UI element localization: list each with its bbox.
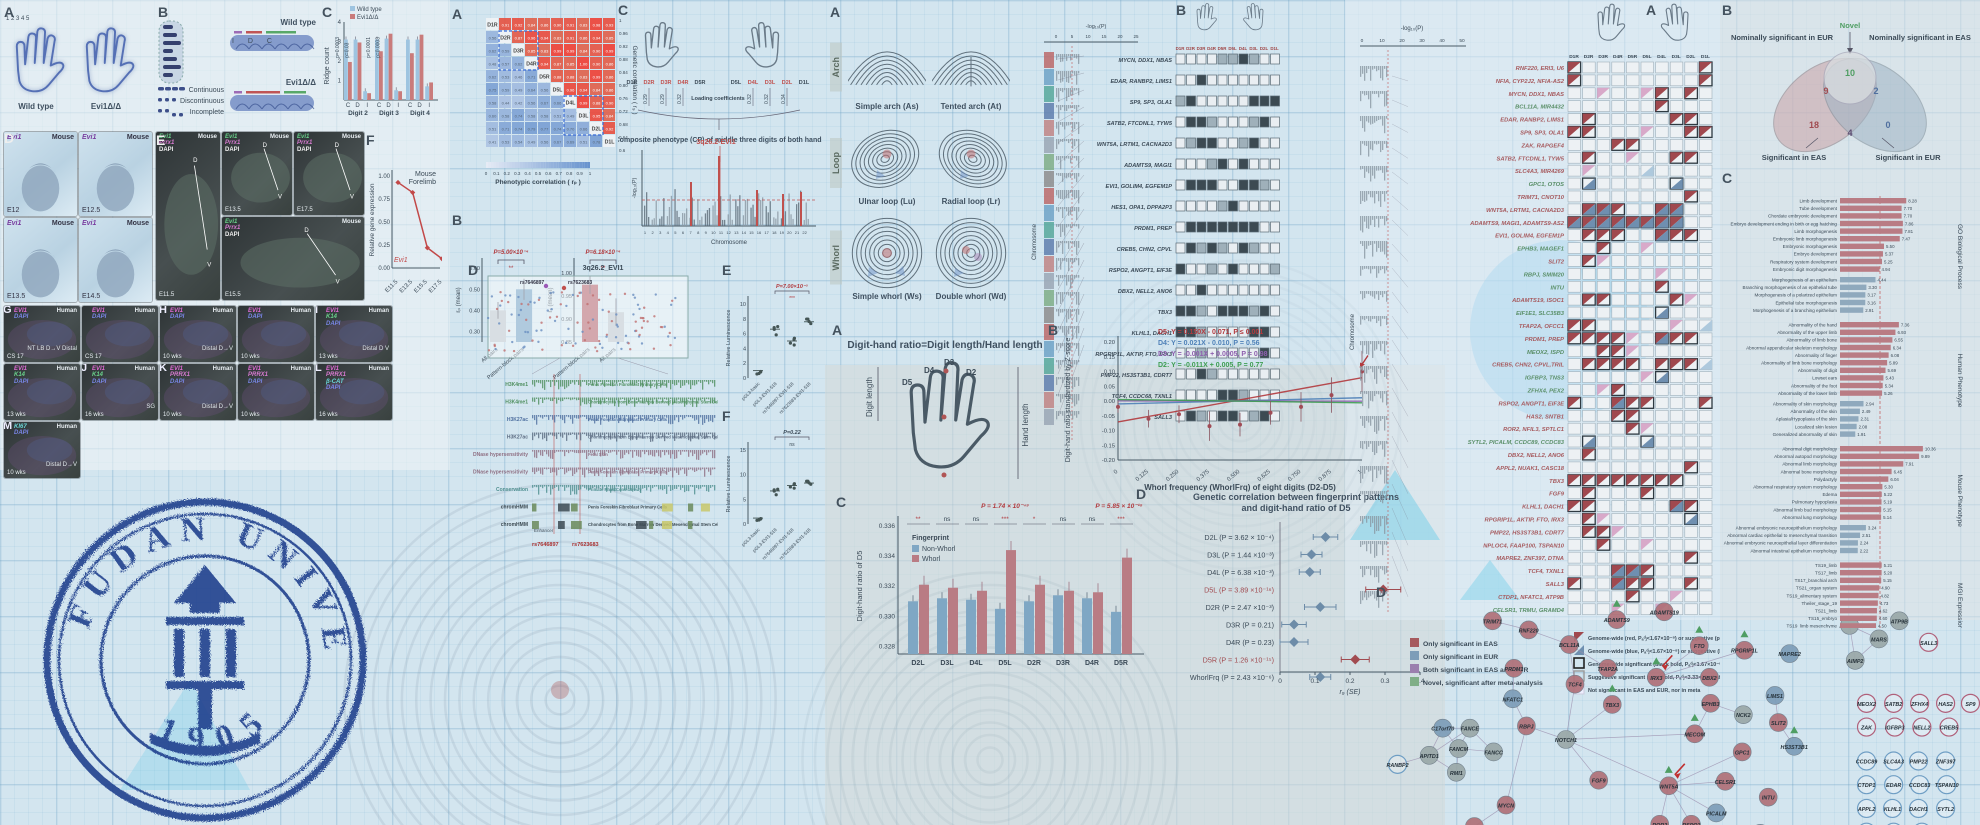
gene-row-label: SP9, SP3, OLA1 — [1130, 100, 1172, 106]
svg-text:0.79: 0.79 — [528, 127, 537, 132]
enrichment-term: TS19_limb mesenchyme — [1786, 624, 1837, 628]
svg-text:16: 16 — [757, 230, 762, 235]
network-gene: NELL2 — [1913, 726, 1930, 732]
network-gene: APITD1 — [1419, 754, 1439, 760]
panel-1d: D Evi1 Mouse E12 Evi1 Mouse E12.5 Evi1 M… — [4, 132, 152, 302]
enrichment-term: Epithelial tube morphogenesis — [1775, 300, 1837, 305]
svg-text:4.44: 4.44 — [1878, 278, 1887, 283]
forest-row-label: D5R (P = 1.26 ×10⁻¹⁵) — [1203, 655, 1274, 664]
enrichment-term: TS21_organ system — [1796, 586, 1837, 591]
svg-text:22: 22 — [802, 230, 807, 235]
svg-text:0.53: 0.53 — [502, 140, 511, 145]
svg-text:0.59: 0.59 — [502, 88, 511, 93]
svg-text:0.95: 0.95 — [593, 114, 602, 119]
svg-text:7.70: 7.70 — [1904, 206, 1913, 211]
enrichment-term: Polydactyly — [1814, 477, 1838, 482]
svg-text:5: 5 — [743, 497, 746, 503]
svg-text:0.67: 0.67 — [541, 101, 550, 106]
svg-text:0.2: 0.2 — [504, 171, 511, 176]
svg-text:Significant in EAS: Significant in EAS — [1762, 153, 1827, 162]
svg-text:3q26.2_EVI1: 3q26.2_EVI1 — [583, 265, 624, 272]
svg-text:D5R: D5R — [1114, 660, 1128, 667]
svg-text:D1L: D1L — [1270, 46, 1279, 51]
gene-row-label: FGF9 — [1549, 492, 1565, 498]
svg-text:D3R: D3R — [513, 49, 524, 55]
network-gene: RNF220 — [1519, 628, 1539, 634]
panel-ratio-c-bars: C P = 1.74 × 10⁻⁴⁹ P = 5.85 × 10⁻¹⁹ **ns… — [852, 498, 1148, 693]
svg-text:0.6: 0.6 — [545, 171, 552, 176]
svg-text:5.37: 5.37 — [1885, 252, 1894, 257]
network-gene: EPHB3 — [1702, 702, 1720, 708]
regression-equation: D3: Y = -0.001X + 0.0005, P = 0.98 — [1158, 351, 1268, 358]
gene-row-label: EVI1, GOLIM4, EGFEM1P — [1105, 184, 1172, 190]
enrichment-term: Abnormal limb bud morphology — [1773, 507, 1837, 512]
svg-text:5.50: 5.50 — [1886, 244, 1895, 249]
svg-text:rₚ (mean): rₚ (mean) — [456, 287, 462, 312]
enrichment-term: Localized skin lesion — [1795, 424, 1838, 429]
svg-text:0.90: 0.90 — [593, 62, 602, 67]
svg-text:D3L: D3L — [579, 114, 590, 120]
enrichment-term: TS17_limb — [1815, 571, 1837, 576]
svg-text:0.4: 0.4 — [524, 171, 531, 176]
svg-text:9: 9 — [705, 230, 708, 235]
svg-text:rs7646897: rs7646897 — [532, 542, 559, 548]
svg-text:D5R: D5R — [539, 75, 550, 81]
svg-text:5.20: 5.20 — [1884, 571, 1893, 576]
enrichment-term: Abnormal respiratory system morphology — [1753, 485, 1837, 490]
svg-text:5.25: 5.25 — [1884, 259, 1893, 264]
svg-text:D5R: D5R — [1218, 46, 1228, 51]
svg-text:2: 2 — [338, 59, 342, 65]
svg-text:0.91: 0.91 — [502, 23, 511, 28]
enrichment-term: Abnormal limb morphology — [1782, 462, 1837, 467]
svg-text:0.57: 0.57 — [502, 62, 511, 67]
enrichment-term: Abnormality of the skin — [1791, 409, 1838, 414]
svg-text:0.75: 0.75 — [489, 88, 498, 93]
svg-text:4: 4 — [743, 346, 746, 352]
svg-text:0: 0 — [1885, 120, 1890, 130]
gene-row-label: TRIM71, CNOT10 — [1517, 195, 1564, 201]
panel-2f-luciferase: F 051015 Relative Luminescence pGL3-basi… — [722, 408, 822, 558]
svg-text:I: I — [397, 103, 399, 109]
svg-text:C: C — [346, 103, 351, 109]
svg-text:Penis Foreskin Fibroblast Prim: Penis Foreskin Fibroblast Primary Cells — [588, 470, 668, 475]
digit-image: Wild type — [228, 18, 316, 53]
network-gene: NOTCH1 — [1555, 738, 1577, 744]
svg-text:V: V — [350, 194, 354, 200]
svg-text:2: 2 — [1873, 86, 1878, 96]
gene-row-label: PMP22, HS3ST3B1, CDRT7 — [1490, 530, 1565, 536]
network-gene: HS3ST3B1 — [1781, 745, 1808, 751]
svg-text:Mouse: Mouse — [415, 171, 436, 178]
enrichment-term: Tube development — [1799, 206, 1838, 211]
svg-text:0.7: 0.7 — [556, 171, 563, 176]
svg-text:13: 13 — [734, 230, 739, 235]
svg-text:D4R: D4R — [677, 80, 688, 86]
svg-text:I: I — [366, 103, 368, 109]
idc-markers: I D C — [232, 38, 278, 45]
svg-text:20: 20 — [1117, 34, 1123, 39]
svg-text:6: 6 — [682, 230, 685, 235]
limb-section-image: Evi1Prrx1DAPI MouseE11.5 DV — [156, 132, 220, 300]
svg-text:p<0.0001: p<0.0001 — [366, 37, 372, 58]
fingerprint-group: Loop Ulnar loop (Lu)Radial loop (Lr) — [830, 119, 1056, 206]
svg-text:Whorl: Whorl — [922, 556, 941, 563]
track-name: H3K4me1 — [505, 382, 528, 388]
network-gene: FTO — [1694, 644, 1705, 650]
enrichment-term: Abnormal cardiac epithelial to mesenchym… — [1727, 533, 1837, 538]
svg-text:5.34: 5.34 — [1885, 383, 1894, 388]
svg-text:0.91: 0.91 — [567, 23, 576, 28]
svg-text:D4R: D4R — [1207, 46, 1217, 51]
network-gene: TBX3 — [1605, 703, 1619, 709]
enrichment-term: Abnormality of the upper limb — [1777, 330, 1837, 335]
network-gene: ADAMTS9 — [1603, 618, 1630, 624]
limb-section-image: Evi1Prrx1DAPI MouseE15.5 DV — [222, 217, 364, 300]
svg-text:4.60: 4.60 — [1879, 616, 1888, 621]
svg-text:10: 10 — [740, 473, 746, 479]
enrichment-term: TS19_limb — [1815, 563, 1837, 568]
svg-text:4: 4 — [338, 20, 342, 26]
svg-text:D3L: D3L — [1249, 46, 1258, 51]
svg-text:D5L: D5L — [731, 80, 742, 86]
enrichment-term: Abnormality of limb bone — [1786, 338, 1837, 343]
svg-text:5.30: 5.30 — [1884, 485, 1893, 490]
track-name: DNase hypersensitivity — [473, 452, 528, 458]
network-gene: SLIT2 — [1771, 721, 1786, 727]
panel-1c-ridge-chart: C Wild type Evi1Δ/Δ 1234 Ridge count CDI… — [322, 4, 442, 128]
svg-text:0.83: 0.83 — [580, 75, 589, 80]
embryo-limb-image: Evi1 Mouse E12 — [4, 132, 77, 216]
svg-text:0.330: 0.330 — [879, 613, 896, 620]
svg-text:6.08: 6.08 — [1891, 353, 1900, 358]
svg-text:7.86: 7.86 — [1905, 221, 1914, 226]
svg-text:3.16: 3.16 — [1867, 300, 1876, 305]
track-name: chromHMM — [501, 505, 528, 511]
network-gene: BCL11A — [1559, 643, 1580, 649]
svg-text:5.15: 5.15 — [1883, 578, 1892, 583]
enrichment-term: Abnormal embryonic neuroepithelium morph… — [1736, 526, 1838, 531]
gene-row-label: APPL2, NUAK1, CASC18 — [1495, 466, 1565, 472]
svg-text:0.83: 0.83 — [541, 49, 550, 54]
enrichment-term: Branching morphogenesis of an epithelial… — [1743, 285, 1838, 290]
svg-text:rs7646897: rs7646897 — [520, 280, 544, 286]
svg-text:0.334: 0.334 — [879, 553, 896, 560]
svg-text:8.28: 8.28 — [1908, 199, 1917, 204]
svg-text:0.94: 0.94 — [541, 62, 550, 67]
svg-text:-0.10: -0.10 — [1102, 429, 1115, 435]
enrichment-term: Abnormality of finger — [1795, 353, 1838, 358]
svg-text:0.96: 0.96 — [528, 36, 537, 41]
network-gene: CCDC89 — [1856, 759, 1878, 765]
group-label: Loop — [830, 138, 842, 188]
gene-row-label: EVI1, GOLIM4, EGFEM1P — [1495, 234, 1564, 240]
svg-text:Chromosome: Chromosome — [1032, 223, 1038, 260]
svg-text:D: D — [386, 103, 391, 109]
svg-text:7.36: 7.36 — [1901, 323, 1910, 328]
gene-row-label: PRDM1, PREP — [1525, 337, 1564, 343]
svg-text:C: C — [377, 103, 382, 109]
enrichment-term: TS19_alimentary system — [1786, 593, 1837, 598]
svg-text:5.14: 5.14 — [1883, 515, 1892, 520]
enrichment-term: Edema — [1822, 492, 1837, 497]
svg-text:7.81: 7.81 — [1904, 229, 1913, 234]
panel-4d-network: D TRIM71RNF220BCL11AADAMTS9ADAMTS19FTORP… — [1380, 600, 1980, 825]
forest-row-label: D2R (P = 2.47 ×10⁻³) — [1206, 603, 1274, 612]
svg-text:50: 50 — [1459, 38, 1465, 44]
svg-text:0.86: 0.86 — [606, 88, 615, 93]
svg-text:0.99: 0.99 — [593, 75, 602, 80]
enrichment-term: Aplasia/Hypoplasia of the skin — [1776, 417, 1838, 422]
svg-text:V: V — [207, 262, 211, 268]
network-gene: TSPAN10 — [1935, 783, 1959, 789]
gene-row-label: EDAR, RANBP2, LIMS1 — [1500, 118, 1564, 124]
gene-row-label: ADAMTS9, MAGI1, ADAMTS9-AS2 — [1469, 221, 1565, 227]
svg-text:0.41: 0.41 — [489, 140, 498, 145]
network-gene: IGFBP3 — [1885, 726, 1904, 732]
svg-text:0.94: 0.94 — [593, 36, 602, 41]
svg-text:0.86: 0.86 — [606, 75, 615, 80]
enrichment-term: Limb morphogenesis — [1794, 229, 1837, 234]
svg-text:Penis Foreskin Fibroblast Prim: Penis Foreskin Fibroblast Primary Cells — [588, 417, 668, 422]
svg-text:4.50: 4.50 — [1878, 624, 1887, 628]
svg-text:Ridge count: Ridge count — [324, 47, 331, 84]
gene-row-label: KLHL1, DACH1 — [1522, 505, 1564, 511]
network-gene: NFATC1 — [1503, 697, 1524, 703]
svg-text:D3L: D3L — [765, 80, 776, 86]
svg-text:Novel: Novel — [1840, 21, 1860, 30]
svg-text:6.93: 6.93 — [1897, 330, 1906, 335]
svg-text:8: 8 — [743, 317, 746, 323]
svg-text:D2R: D2R — [643, 80, 654, 86]
enrichment-term: Lowset ears — [1812, 376, 1837, 381]
svg-text:0.05: 0.05 — [1104, 384, 1115, 390]
svg-text:0.99: 0.99 — [606, 49, 615, 54]
svg-text:rs7623683-EVI1-518: rs7623683-EVI1-518 — [778, 527, 812, 561]
svg-text:0: 0 — [485, 171, 488, 176]
gene-row-label: TFAP2A, OFCC1 — [1519, 324, 1564, 330]
svg-text:Digit-hand ratio of D5: Digit-hand ratio of D5 — [855, 551, 864, 622]
svg-text:0.29: 0.29 — [643, 94, 649, 104]
panel-5b-venn: B Novel Nominally significant in EUR Nom… — [1722, 2, 1978, 170]
gene-row-label: CREB5, CHN2, CPVL — [1117, 247, 1173, 253]
gene-row-label: IGFBP3, TNS3 — [1525, 376, 1565, 382]
svg-text:3.24: 3.24 — [1868, 526, 1877, 531]
svg-text:0.90: 0.90 — [554, 23, 563, 28]
svg-text:p=0.03: p=0.03 — [345, 42, 351, 58]
svg-text:2.51: 2.51 — [1862, 533, 1871, 538]
svg-text:6.45: 6.45 — [1894, 469, 1903, 474]
svg-text:14: 14 — [742, 230, 747, 235]
forest-row-label: D4L (P = 6.38 ×10⁻³) — [1207, 568, 1274, 577]
svg-text:Nominally significant in EAS: Nominally significant in EAS — [1869, 33, 1971, 42]
track-name: chromHMM — [501, 522, 528, 528]
svg-text:D1R: D1R — [487, 23, 498, 29]
svg-text:Significant in EUR: Significant in EUR — [1875, 153, 1941, 162]
track-name: H3K4me1 — [505, 400, 528, 406]
network-gene: HAS2 — [1938, 702, 1952, 708]
svg-text:D2L: D2L — [592, 127, 603, 133]
human-section-image: EVI1DAPI Human10 wks — [238, 306, 314, 362]
svg-text:0.85: 0.85 — [567, 62, 576, 67]
svg-text:C: C — [408, 103, 413, 109]
svg-text:0.94: 0.94 — [580, 88, 589, 93]
svg-text:18: 18 — [1809, 120, 1819, 130]
panel-1g-m-tiles: G EVI1DAPI HumanCS 17 NT LB D→V Distal E… — [4, 306, 442, 422]
svg-text:5.22: 5.22 — [1884, 492, 1893, 497]
svg-text:D1L: D1L — [799, 80, 810, 86]
svg-text:3.17: 3.17 — [1867, 293, 1876, 298]
svg-text:Digit 2: Digit 2 — [348, 110, 368, 117]
network-gene: RANBP2 — [1386, 763, 1408, 769]
svg-text:0.77: 0.77 — [541, 127, 550, 132]
svg-text:2: 2 — [651, 230, 654, 235]
svg-text:-0.05: -0.05 — [1102, 414, 1115, 420]
svg-text:6: 6 — [743, 332, 746, 338]
svg-text:0.88: 0.88 — [593, 101, 602, 106]
svg-text:D2R: D2R — [1186, 46, 1196, 51]
panel-ratio-a-hand: A Digit-hand ratio=Digit length/Hand len… — [832, 322, 1058, 494]
svg-text:P=7.00×10⁻⁵: P=7.00×10⁻⁵ — [776, 284, 809, 290]
svg-text:0.50: 0.50 — [378, 220, 390, 226]
gene-row-label: TCF4, TXNL1 — [1528, 569, 1564, 575]
svg-text:p=0.0003: p=0.0003 — [335, 37, 341, 58]
svg-text:-log₁₀(P): -log₁₀(P) — [1401, 26, 1424, 32]
regression-equation: D5: Y = 0.150X - 0.071, P ≤ 0.001 — [1158, 329, 1263, 336]
network-gene: FGF9 — [1592, 779, 1606, 785]
svg-text:D4L: D4L — [1239, 46, 1248, 51]
enrichment-term: Abnormal autopod morphology — [1774, 454, 1838, 459]
gene-row-label: ADAMTS19, ISOC1 — [1511, 298, 1564, 304]
svg-text:0.49: 0.49 — [515, 88, 524, 93]
enrichment-term: Theiler_stage_19 — [1802, 601, 1838, 606]
human-section-image: H EVI1DAPI Human10 wks Distal D→V — [160, 306, 236, 362]
svg-text:D5L: D5L — [1228, 46, 1237, 51]
panel-2c-manhattan: 3q26.2-EVI1 1234567891011121314151617181… — [630, 134, 822, 250]
network-gene: MEOX2 — [1857, 702, 1876, 708]
hand-caption: Evi1Δ/Δ — [74, 102, 138, 111]
enrichment-term: Generalized abnormality of skin — [1773, 432, 1838, 437]
svg-text:2.49: 2.49 — [1862, 409, 1871, 414]
svg-text:4.62: 4.62 — [1879, 609, 1888, 614]
svg-text:0.625: 0.625 — [1257, 469, 1272, 483]
svg-text:Digit length: Digit length — [865, 377, 874, 417]
enrichment-term: Abnormality of the hand — [1788, 323, 1837, 328]
panel-1f-expression-line: F MouseForelimb 0.000.250.500.751.00 Rel… — [366, 132, 442, 302]
gene-row-label: TBX3 — [1158, 310, 1173, 316]
network-gene: EDAR — [1886, 783, 1901, 789]
svg-text:-log₁₀(P): -log₁₀(P) — [1086, 24, 1107, 30]
network-gene: ZFHX4 — [1910, 702, 1928, 708]
svg-text:0.92: 0.92 — [606, 127, 615, 132]
svg-text:D1R: D1R — [1569, 54, 1579, 60]
svg-text:Digit 3: Digit 3 — [379, 110, 399, 117]
svg-text:Evi1Δ/Δ: Evi1Δ/Δ — [357, 15, 378, 21]
svg-text:Relative Luminescence: Relative Luminescence — [726, 310, 732, 367]
svg-text:Hand length: Hand length — [1021, 403, 1030, 446]
svg-text:D: D — [417, 103, 422, 109]
ridge-type-label: Incomplete — [190, 109, 224, 116]
gene-row-label: MAPRE2, ZNF397, DTNA — [1496, 556, 1564, 562]
svg-text:D3L: D3L — [940, 660, 954, 667]
enrichment-group-label: MGI Expression: Detected — [1956, 583, 1963, 628]
svg-text:***: *** — [1117, 516, 1125, 523]
svg-text:D4L: D4L — [566, 101, 577, 107]
fingerprint-type: Simple whorl (Ws) — [848, 214, 926, 301]
svg-text:7.47: 7.47 — [1902, 237, 1911, 242]
gene-row-label: EIF1E1, SLC35B3 — [1516, 311, 1565, 317]
svg-text:0.87: 0.87 — [515, 36, 524, 41]
svg-text:D2R: D2R — [1584, 54, 1594, 60]
gene-row-label: MYCN, DDX1, NBAS — [1119, 58, 1173, 64]
svg-text:21: 21 — [795, 230, 800, 235]
network-gene: RPGRIP1L — [1731, 649, 1758, 655]
svg-text:-0.15: -0.15 — [1102, 443, 1115, 449]
svg-text:5.43: 5.43 — [1885, 376, 1894, 381]
svg-text:10: 10 — [1379, 38, 1385, 44]
svg-text:0.74: 0.74 — [515, 114, 524, 119]
svg-text:Whorl frequency (WhorlFrq) of: Whorl frequency (WhorlFrq) of eight digi… — [1144, 483, 1336, 492]
svg-text:0.56: 0.56 — [528, 101, 537, 106]
gene-row-label: TBX3 — [1549, 479, 1565, 485]
gene-row-label: DBX2, NELL2, ANO6 — [1508, 453, 1565, 459]
svg-text:0.29: 0.29 — [660, 94, 666, 104]
svg-text:0.56: 0.56 — [541, 88, 550, 93]
svg-text:3.30: 3.30 — [1868, 285, 1877, 290]
svg-text:D5L: D5L — [553, 88, 564, 94]
limb-section-image: Evi1Prrx1DAPI MouseE13.5 DV — [222, 132, 292, 215]
svg-text:Wild type: Wild type — [357, 7, 382, 13]
network-gene: CTDP1 — [1858, 783, 1876, 789]
svg-text:0.58: 0.58 — [541, 114, 550, 119]
svg-text:Enhancer: Enhancer — [534, 528, 554, 533]
svg-text:1: 1 — [338, 79, 342, 85]
enrichment-term: Pulmonary hypoplasia — [1792, 500, 1838, 505]
group-label: Arch — [830, 43, 842, 92]
svg-text:0.99: 0.99 — [554, 49, 563, 54]
svg-text:0.91: 0.91 — [567, 36, 576, 41]
svg-text:E17.5: E17.5 — [428, 279, 442, 295]
gene-row-label: SATB2, FTCDNL1, TYW5 — [1496, 156, 1564, 162]
network-gene: DACH1 — [1909, 807, 1928, 813]
svg-text:ns: ns — [944, 516, 952, 523]
panel-2c-hands: C D1RD2RD3RD4RD5RD5LD4LD3LD2LD1L 0.290.2… — [618, 2, 822, 132]
svg-text:ns: ns — [1089, 516, 1097, 523]
svg-text:0.125: 0.125 — [1135, 469, 1150, 483]
network-gene: CCDC83 — [1909, 783, 1931, 789]
panel-2d-locus-tracks: D 3q26.2_EVI1 rs7646897rs7623683 H3K4me1… — [468, 262, 718, 552]
svg-text:0.5: 0.5 — [535, 171, 542, 176]
svg-text:Chromosome: Chromosome — [1350, 313, 1356, 350]
network-gene: MAPRE2 — [1778, 652, 1800, 658]
forest-row-label: D2L (P = 3.62 × 10⁻⁴) — [1204, 533, 1274, 542]
enrichment-term: Abnormal lung morphology — [1782, 515, 1838, 520]
svg-text:D: D — [263, 143, 268, 149]
svg-text:3: 3 — [659, 230, 662, 235]
forest-row-label: D3L (P = 1.44 ×10⁻³) — [1207, 550, 1274, 559]
svg-text:19: 19 — [780, 230, 785, 235]
svg-text:6.04: 6.04 — [1890, 477, 1899, 482]
svg-text:D1R: D1R — [1176, 46, 1186, 51]
svg-text:0.88: 0.88 — [567, 75, 576, 80]
svg-text:9: 9 — [1823, 86, 1828, 96]
svg-text:0.32: 0.32 — [764, 94, 770, 104]
enrichment-group-label: Mouse Phenotype — [1956, 474, 1963, 527]
svg-text:D4L: D4L — [1657, 54, 1666, 60]
regression-equation: D4: Y = 0.021X - 0.010, P = 0.56 — [1158, 340, 1260, 347]
network-gene: PMP22 — [1910, 759, 1928, 765]
network-gene: TCF4 — [1568, 683, 1581, 689]
